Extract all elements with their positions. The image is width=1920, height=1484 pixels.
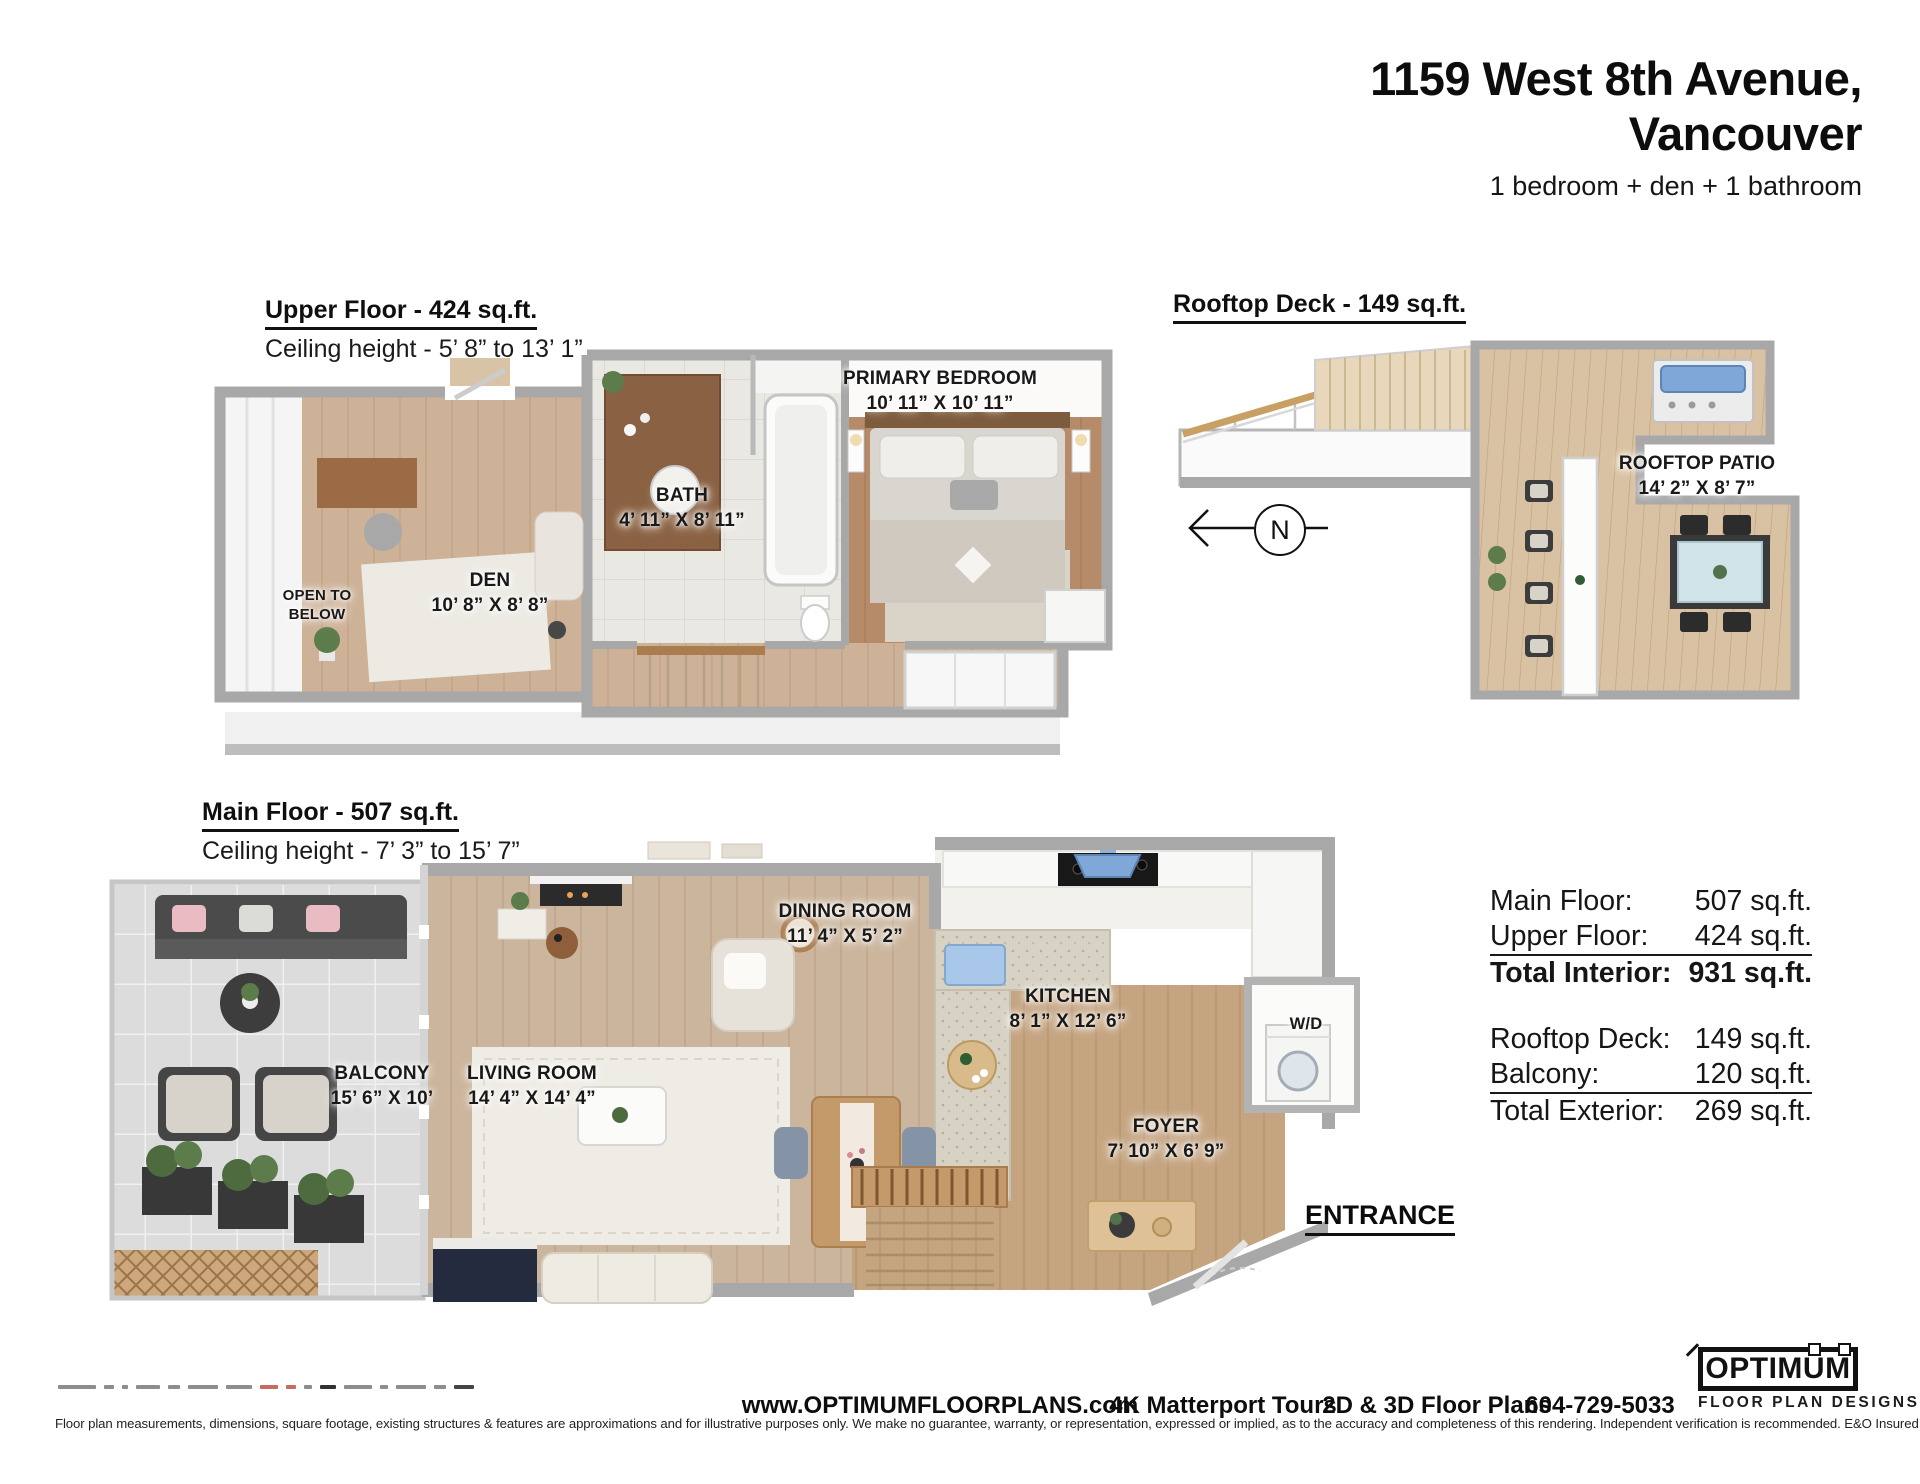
summary-row: Rooftop Deck: 149 sq.ft.: [1490, 1022, 1812, 1057]
title-line2: Vancouver: [1370, 107, 1862, 162]
upper-floor-title: Upper Floor - 424 sq.ft.: [265, 296, 537, 330]
bbq-grill: [1653, 360, 1753, 422]
label-kitchen: KITCHEN 8’ 1” X 12’ 6”: [1010, 984, 1127, 1034]
dish-rack: [945, 945, 1005, 985]
bathtub: [765, 395, 837, 585]
compass-icon: N: [1180, 500, 1340, 556]
open-to-below-area: [220, 392, 302, 697]
page-subtitle: 1 bedroom + den + 1 bathroom: [1370, 171, 1862, 202]
header: 1159 West 8th Avenue, Vancouver 1 bedroo…: [1370, 52, 1862, 202]
compass-north-label: N: [1254, 504, 1306, 556]
trellis: [110, 1250, 318, 1300]
balcony-ottoman: [220, 973, 280, 1033]
hall-closet: [905, 652, 1055, 708]
entrance-label: ENTRANCE: [1305, 1200, 1455, 1236]
summary-row-total: Total Exterior: 269 sq.ft.: [1490, 1094, 1812, 1129]
label-dining-room: DINING ROOM 11’ 4” X 5’ 2”: [778, 899, 911, 949]
piano: [433, 1238, 537, 1302]
main-floor-drawing: [100, 835, 1360, 1315]
disclaimer-text: Floor plan measurements, dimensions, squ…: [55, 1416, 1920, 1431]
floorplan-page: 1159 West 8th Avenue, Vancouver 1 bedroo…: [0, 0, 1920, 1484]
exterior-summary: Rooftop Deck: 149 sq.ft. Balcony: 120 sq…: [1490, 1022, 1812, 1129]
label-open-to-below: OPEN TO BELOW: [267, 586, 367, 624]
laundry-closet: [1248, 981, 1358, 1109]
summary-row-total: Total Interior: 931 sq.ft.: [1490, 956, 1812, 991]
wardrobe: [1045, 590, 1105, 642]
wall-art-2: [722, 844, 762, 858]
floor-vase: [548, 621, 566, 639]
summary-row: Main Floor: 507 sq.ft.: [1490, 884, 1812, 919]
rooftop-heading: Rooftop Deck - 149 sq.ft.: [1173, 290, 1466, 324]
label-balcony: BALCONY 15’ 6” X 10’: [331, 1061, 434, 1111]
range-hood: [1075, 855, 1140, 877]
logo-frame-icon: OPTIMUM: [1698, 1347, 1858, 1391]
bed: [848, 412, 1090, 603]
label-wd: W/D: [1290, 1012, 1323, 1037]
foyer-bench: [1088, 1201, 1196, 1251]
label-foyer: FOYER 7’ 10” X 6’ 9”: [1108, 1114, 1225, 1164]
main-stairs: [852, 1167, 1007, 1289]
deck-walkway: [1180, 430, 1475, 488]
label-primary-bedroom: PRIMARY BEDROOM 10’ 11” X 10’ 11”: [843, 366, 1037, 416]
label-bath: BATH 4’ 11” X 8’ 11”: [619, 483, 745, 533]
page-title: 1159 West 8th Avenue, Vancouver: [1370, 52, 1862, 161]
optimum-logo: OPTIMUM FLOOR PLAN DESIGNS: [1698, 1347, 1860, 1412]
main-floor-title: Main Floor - 507 sq.ft.: [202, 798, 459, 832]
deck-stairs: [1315, 346, 1475, 430]
label-den: DEN 10’ 8” X 8’ 8”: [432, 568, 549, 618]
ruler-square-icon: [1808, 1343, 1821, 1356]
label-rooftop-patio: ROOFTOP PATIO 14’ 2” X 8’ 7”: [1619, 451, 1775, 501]
summary-row: Balcony: 120 sq.ft.: [1490, 1057, 1812, 1094]
wall-art: [648, 842, 710, 859]
fireplace: [530, 876, 632, 906]
logo-title: OPTIMUM: [1705, 1352, 1850, 1386]
balcony-sofa: [155, 895, 407, 959]
label-living-room: LIVING ROOM 14’ 4” X 14’ 4”: [467, 1061, 597, 1111]
title-line1: 1159 West 8th Avenue,: [1370, 52, 1862, 107]
rooftop-title: Rooftop Deck - 149 sq.ft.: [1173, 290, 1466, 324]
bar-counter: [1563, 458, 1597, 695]
toilet: [801, 596, 829, 641]
ruler-square-icon: [1838, 1343, 1851, 1356]
pencil-icon: [1686, 1343, 1699, 1356]
interior-summary: Main Floor: 507 sq.ft. Upper Floor: 424 …: [1490, 884, 1812, 991]
wall-skirt: [225, 712, 1060, 755]
den-door: [445, 358, 515, 400]
summary-row: Upper Floor: 424 sq.ft.: [1490, 919, 1812, 956]
cropped-watermark: [58, 1384, 474, 1390]
white-sofa: [542, 1253, 712, 1303]
logo-subtitle: FLOOR PLAN DESIGNS: [1698, 1394, 1860, 1412]
